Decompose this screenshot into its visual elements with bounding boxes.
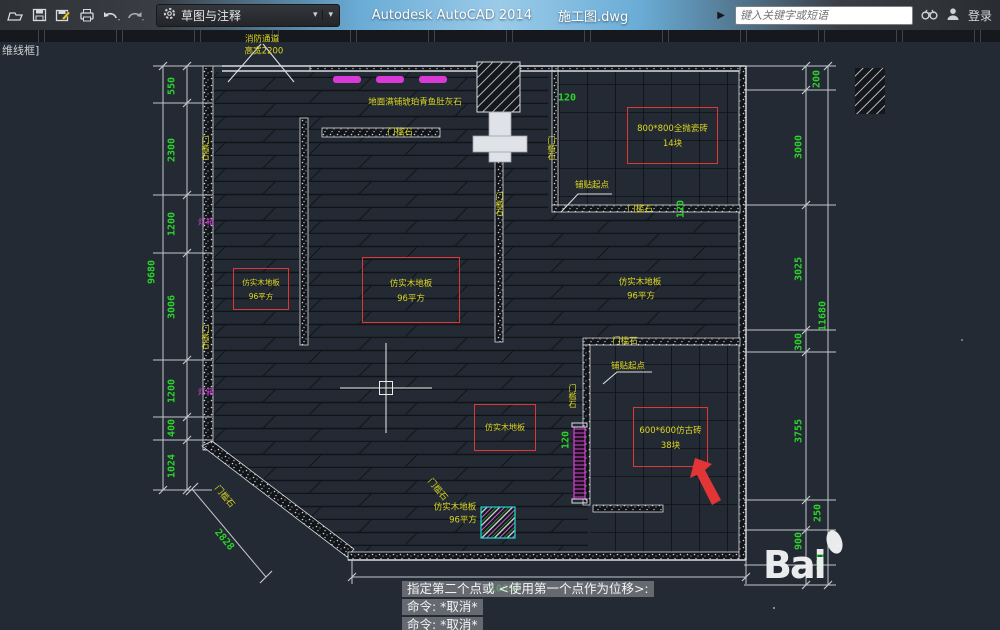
title-bar: 草图与注释 ▾ ▾ Autodesk AutoCAD 2014 施工图.dwg … [0,0,1000,30]
dim-label: 9680 [147,260,158,284]
workspace-gear-icon [163,7,176,23]
light-box-label: 灯箱 [198,387,214,398]
material-callout-600-tile: 600*600仿古砖 38块 [633,407,708,467]
viewport-control-label[interactable]: 维线框] [2,42,39,58]
plan-linework [0,0,1000,630]
dim-label: 550 [167,77,178,95]
workspace-menu-chevron-icon[interactable]: ▾ [322,10,333,20]
threshold-label: 门槛石 [200,136,210,160]
workspace-switcher[interactable]: 草图与注释 ▾ ▾ [156,4,340,27]
wood-floor-area-note: 96平方 [627,292,655,303]
wood-floor-note: 仿实木地板 [619,278,662,289]
dim-label: 120 [676,200,687,218]
fire-lane-note: 消防通道 [245,35,279,46]
threshold-label: 门槛石 [494,192,504,216]
dim-label: 3755 [794,419,805,443]
app-title: Autodesk AutoCAD 2014 [372,8,532,23]
dim-label: 3025 [794,257,805,281]
threshold-label: 门槛石 [546,136,556,160]
redo-icon[interactable] [124,4,146,26]
floor-finish-note: 地面满铺琥珀青鱼肚灰石 [368,98,462,109]
wood-floor-note: 仿实木地板 [434,503,477,514]
search-input[interactable] [735,6,913,25]
save-as-icon[interactable] [52,4,74,26]
dim-label: 3000 [794,135,805,159]
dim-label: 1024 [167,454,178,478]
tile-800-qty: 14块 [663,137,682,149]
dim-label: 400 [167,419,178,437]
user-icon[interactable] [946,7,960,24]
tile-800-label: 800*800全抛瓷砖 [637,122,708,134]
dim-label: 1200 [167,379,178,403]
dim-label: 11680 [818,301,829,331]
binoculars-icon[interactable] [921,7,938,23]
undo-icon[interactable] [100,4,122,26]
command-history-line: 命令: *取消* [402,617,483,630]
material-callout-wood-left: 仿实木地板 96平方 [233,268,289,310]
material-callout-wood-lower: 仿实木地板 [474,404,536,451]
dim-label: 250 [813,504,824,522]
paving-start-label: 铺贴起点 [611,362,645,373]
command-history-line: 命令: *取消* [402,599,483,615]
dim-label: 2300 [167,138,178,162]
dim-label: 1200 [167,212,178,236]
quick-access-toolbar [0,4,146,26]
dim-label: 3006 [167,295,178,319]
threshold-label: 门槛石 [567,384,577,408]
fire-lane-note: 高宽2200 [245,47,284,58]
threshold-label: 门槛石 [387,128,413,139]
light-box-label: 灯箱 [198,217,214,228]
baidu-watermark: Bai [763,543,825,587]
chevron-down-icon: ▾ [313,10,318,20]
dim-label: 120 [558,93,576,104]
dim-label: 300 [794,333,805,351]
document-title: 施工图.dwg [558,6,628,25]
print-icon[interactable] [76,4,98,26]
save-icon[interactable] [28,4,50,26]
threshold-label: 门槛石 [200,325,210,349]
login-button[interactable]: 登录 [968,7,992,24]
material-callout-wood-center: 仿实木地板 96平方 [362,257,460,323]
autocad-window: 草图与注释 ▾ ▾ Autodesk AutoCAD 2014 施工图.dwg … [0,0,1000,630]
paving-start-label: 铺贴起点 [575,181,609,192]
dim-label: 120 [561,431,572,449]
wood-floor-area-note: 96平方 [449,516,477,527]
material-callout-800-tile: 800*800全抛瓷砖 14块 [627,107,718,164]
threshold-label: 门槛石 [612,337,638,348]
command-prompt-line[interactable]: 指定第二个点或 <使用第一个点作为位移>: [402,581,654,597]
workspace-label: 草图与注释 [181,7,241,24]
open-icon[interactable] [4,4,26,26]
dim-label: 200 [812,70,823,88]
threshold-label: 门槛石 [627,205,653,216]
infocenter-expand-icon[interactable]: ▶ [717,10,725,21]
